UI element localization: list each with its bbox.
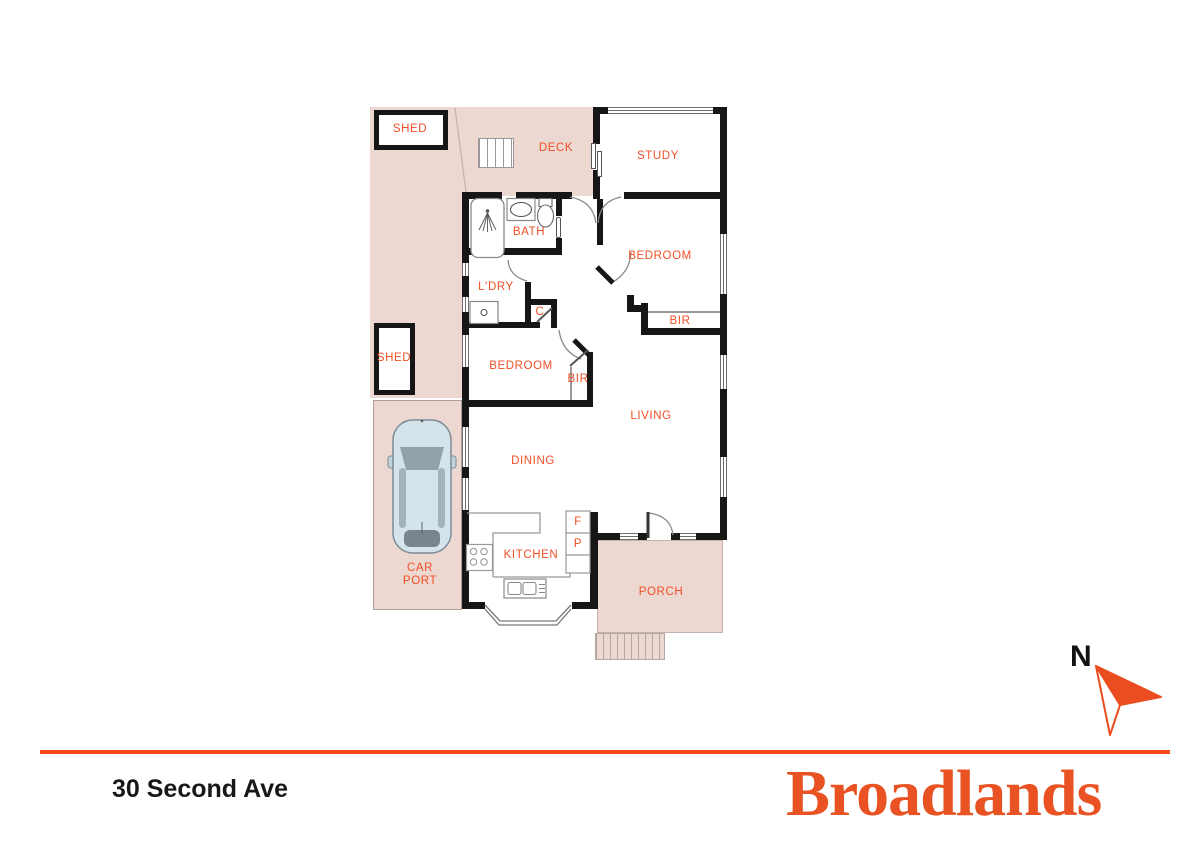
plan-details	[0, 0, 1200, 849]
room-label-carport-2: PORT	[403, 575, 437, 587]
wall-segment	[671, 533, 680, 540]
wall-segment	[516, 192, 572, 199]
room-label-bir-front: BIR	[568, 373, 589, 385]
north-label: N	[1070, 640, 1092, 674]
window	[462, 478, 469, 510]
wall-segment	[627, 305, 648, 312]
window	[462, 335, 469, 367]
room-label-shed-top: SHED	[393, 123, 427, 135]
room-label-laundry: L'DRY	[478, 281, 514, 293]
window	[720, 457, 727, 497]
room-label-living: LIVING	[630, 410, 671, 422]
door-leaves	[574, 267, 613, 355]
cupboard-doors	[537, 308, 588, 366]
porch-steps	[595, 633, 665, 660]
wall-segment	[556, 199, 562, 216]
wall-segment	[462, 467, 469, 478]
north-arrow-icon	[1096, 666, 1161, 735]
wall-segment	[720, 335, 727, 355]
stove-icon	[467, 545, 493, 571]
wall-segment	[462, 276, 469, 297]
sliding-door	[597, 151, 602, 177]
room-label-bedroom-rear: BEDROOM	[628, 250, 692, 262]
wall-segment	[462, 248, 556, 255]
room-label-dining: DINING	[511, 455, 555, 467]
room-label-cupboard: C	[536, 306, 545, 318]
bath-door-leaf	[556, 217, 561, 238]
wall-segment	[462, 400, 593, 407]
wall-segment	[720, 202, 727, 234]
window	[462, 297, 469, 312]
room-label-kitchen: KITCHEN	[504, 549, 559, 561]
bay-window	[485, 605, 571, 625]
room-label-carport-1: CAR	[407, 562, 433, 574]
window	[462, 427, 469, 467]
room-label-bedroom-front: BEDROOM	[489, 360, 553, 372]
wall-segment	[593, 107, 600, 144]
room-label-bir-rear: BIR	[670, 315, 691, 327]
wall-segment	[595, 533, 620, 540]
wall-segment	[590, 512, 598, 609]
wall-segment	[462, 510, 469, 609]
wall-segment	[551, 299, 557, 328]
room-label-pantry: P	[574, 538, 582, 550]
sink-icon	[504, 579, 546, 598]
laundry-trough-icon	[470, 302, 498, 324]
wall-segment	[462, 602, 485, 609]
window	[462, 263, 469, 276]
wall-segment	[462, 322, 540, 328]
wall-segment	[556, 238, 562, 255]
wall-segment	[638, 533, 647, 540]
room-label-shed-side: SHED	[377, 352, 411, 364]
brand-logo: Broadlands	[786, 756, 1101, 832]
wall-segment	[597, 199, 603, 245]
basin-icon	[507, 199, 535, 221]
deck-stairs	[478, 138, 514, 168]
room-label-study: STUDY	[637, 150, 679, 162]
address-text: 30 Second Ave	[112, 775, 288, 804]
window	[680, 533, 696, 540]
room-label-porch: PORCH	[639, 586, 684, 598]
sliding-door	[591, 143, 596, 169]
wall-segment	[720, 389, 727, 457]
floorplan-page: SHED DECK STUDY BATH BEDROOM BIR L'DRY C…	[0, 0, 1200, 849]
kitchen-counter	[467, 513, 570, 577]
wall-segment	[462, 367, 469, 427]
wall-segment	[641, 328, 727, 335]
window	[620, 533, 638, 540]
room-label-bath: BATH	[513, 226, 545, 238]
wall-segment	[462, 192, 469, 252]
window	[720, 355, 727, 389]
room-label-fridge: F	[574, 516, 582, 528]
bir-divider	[648, 311, 720, 313]
window	[720, 234, 727, 294]
footer-divider	[40, 750, 1170, 754]
toilet-icon	[538, 199, 554, 228]
wall-segment	[624, 192, 727, 199]
window	[608, 107, 713, 114]
wall-segment	[696, 533, 727, 540]
wall-segment	[720, 107, 727, 202]
room-label-deck: DECK	[539, 142, 573, 154]
